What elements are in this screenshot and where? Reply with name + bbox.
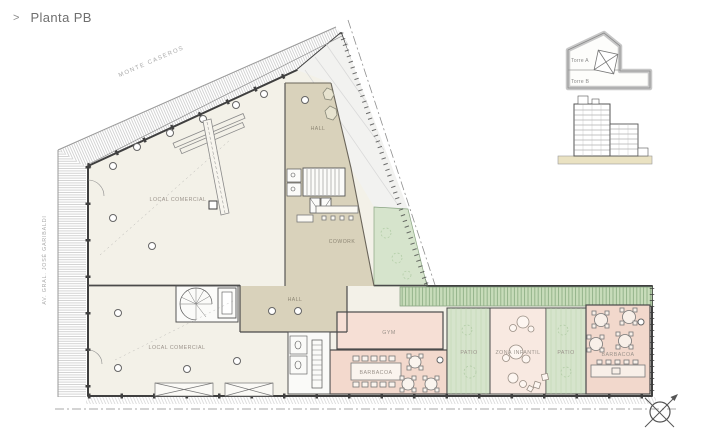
sidewalk-hatch-left — [58, 150, 86, 397]
room-label-hall-lower: HALL — [288, 297, 303, 303]
room-label-barbacoa-right: BARBACOA — [601, 352, 634, 358]
key-plan-label-torre-a: Torre A — [571, 58, 589, 64]
spiral-stair-core — [176, 286, 238, 322]
room-hall-lower — [240, 286, 347, 332]
current-tower-marker — [594, 50, 618, 74]
room-label-local-comercial-upper: LOCAL COMERCIAL — [150, 197, 207, 203]
street-label-garibaldi: AV. GRAL. JOSÉ GARIBALDI — [41, 215, 48, 304]
room-label-local-comercial-lower: LOCAL COMERCIAL — [149, 345, 206, 351]
room-label-patio-right: PATIO — [557, 350, 574, 356]
floor-plan-canvas: LOCAL COMERCIAL HALL COWORK HALL LOCAL C… — [0, 0, 712, 428]
room-label-patio-left: PATIO — [460, 350, 477, 356]
street-label-monte-caseros: MONTE CASEROS — [118, 45, 185, 79]
room-label-zona-infantil: ZONA INFANTIL — [496, 350, 541, 356]
building-elevation — [558, 96, 652, 164]
key-plan: Torre A Torre B — [568, 33, 650, 88]
floor-plan-page: > Planta PB — [0, 0, 712, 428]
sidewalk-hatch-bottom — [86, 397, 656, 404]
sanitary-core — [288, 332, 330, 394]
room-label-barbacoa-center: BARBACOA — [359, 370, 392, 376]
pergola-band — [400, 287, 652, 306]
key-plan-label-torre-b: Torre B — [571, 79, 589, 85]
room-label-gym: GYM — [382, 330, 395, 336]
room-label-cowork: COWORK — [329, 239, 356, 245]
room-label-hall-upper: HALL — [311, 126, 326, 132]
garden-strip — [374, 207, 427, 286]
